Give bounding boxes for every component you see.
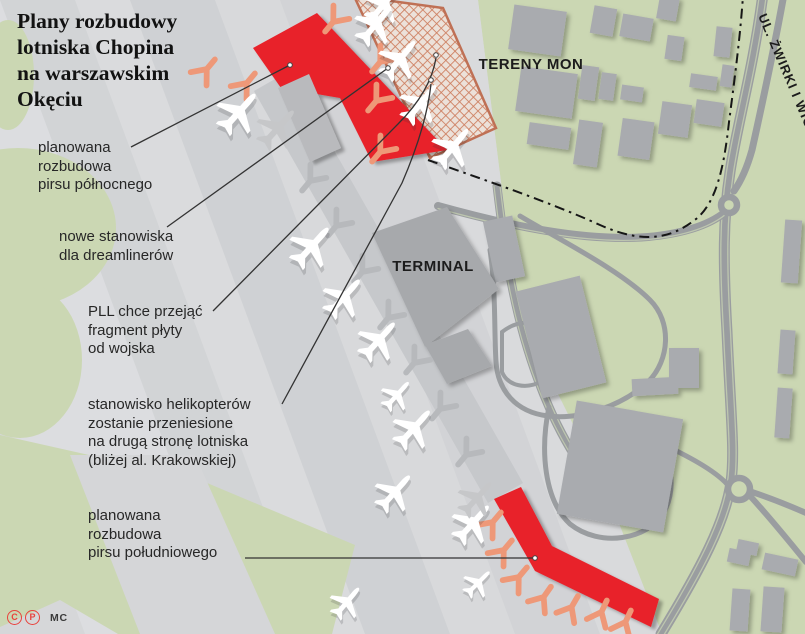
annotation-north-pier: planowanarozbudowapirsu północnego — [38, 139, 152, 195]
map-label-terminal: TERMINAL — [392, 258, 474, 275]
page-title: Plany rozbudowylotniska Chopinana warsza… — [17, 8, 177, 112]
annotation-dreamliners: nowe stanowiskadla dreamlinerów — [59, 228, 173, 265]
annotation-pll-apron: PLL chce przejąćfragment płytyod wojska — [88, 303, 203, 359]
copyright-icon: C — [7, 610, 22, 625]
map-label-tereny-mon: TERENY MON — [479, 56, 584, 73]
credits: C P MC — [7, 610, 68, 625]
annotation-helicopters: stanowisko helikopterówzostanie przenies… — [88, 396, 251, 470]
phonogram-icon: P — [25, 610, 40, 625]
annotation-south-pier: planowanarozbudowapirsu południowego — [88, 507, 217, 563]
credits-initials: MC — [50, 612, 68, 624]
airport-infographic: TERENY MONTERMINALUL. ŻWIRKI I WIGURY Pl… — [0, 0, 805, 634]
